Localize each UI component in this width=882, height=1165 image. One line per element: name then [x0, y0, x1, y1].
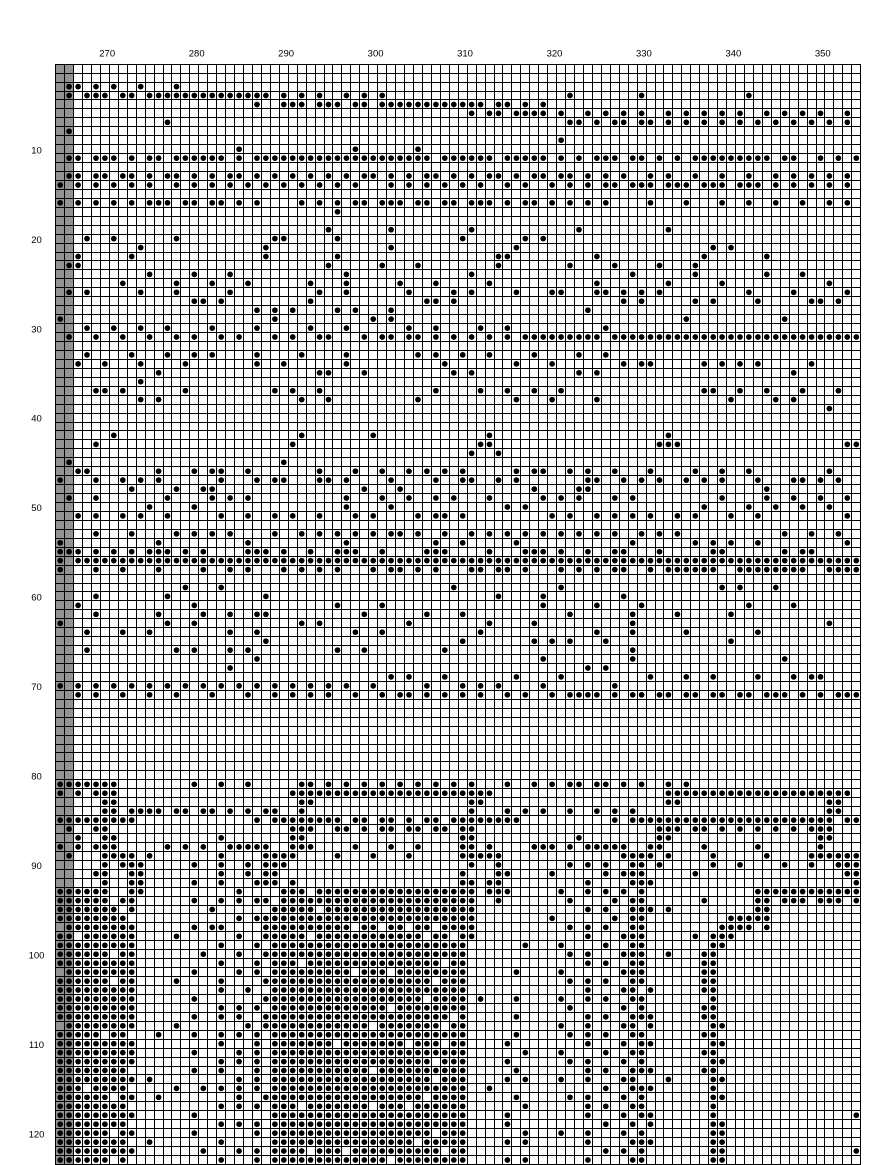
svg-text:30: 30 — [31, 324, 42, 335]
svg-text:50: 50 — [31, 503, 42, 514]
svg-text:110: 110 — [29, 1040, 44, 1051]
svg-text:120: 120 — [29, 1129, 45, 1140]
svg-text:60: 60 — [31, 593, 42, 604]
svg-text:310: 310 — [457, 49, 473, 60]
svg-text:280: 280 — [189, 49, 205, 60]
svg-text:340: 340 — [725, 49, 741, 60]
svg-text:90: 90 — [31, 861, 42, 872]
svg-text:350: 350 — [815, 49, 831, 60]
svg-text:40: 40 — [31, 414, 42, 425]
svg-text:100: 100 — [29, 950, 45, 961]
svg-text:300: 300 — [368, 49, 384, 60]
svg-text:320: 320 — [547, 49, 563, 60]
svg-text:20: 20 — [31, 235, 42, 246]
svg-text:10: 10 — [31, 145, 42, 156]
svg-text:270: 270 — [99, 49, 115, 60]
svg-text:290: 290 — [278, 49, 294, 60]
svg-text:80: 80 — [31, 772, 42, 783]
svg-text:330: 330 — [636, 49, 652, 60]
svg-text:70: 70 — [31, 682, 42, 693]
